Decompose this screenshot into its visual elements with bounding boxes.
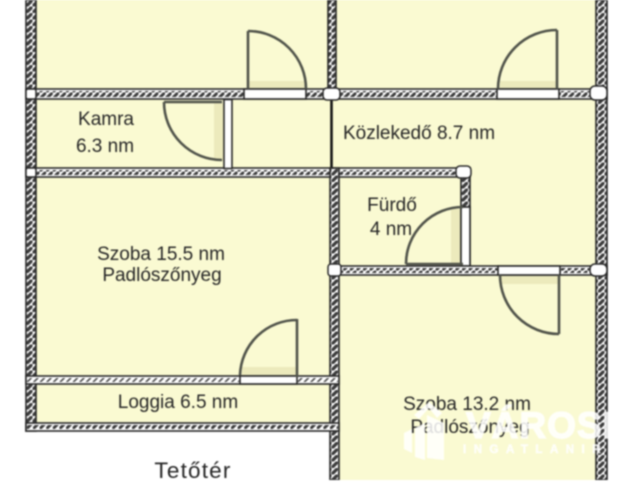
svg-text:Fürdő: Fürdő — [367, 195, 417, 216]
svg-text:Közlekedő 8.7 nm: Közlekedő 8.7 nm — [343, 123, 495, 144]
svg-text:Szoba 15.5 nm: Szoba 15.5 nm — [97, 244, 225, 265]
svg-text:Loggia 6.5 nm: Loggia 6.5 nm — [118, 392, 238, 413]
svg-text:Kamra: Kamra — [78, 109, 134, 130]
svg-text:INGATLANIRODA: INGATLANIRODA — [463, 444, 640, 456]
svg-text:Tetőtér: Tetőtér — [154, 458, 231, 480]
svg-text:6.3 nm: 6.3 nm — [76, 136, 134, 157]
svg-text:4 nm: 4 nm — [370, 219, 412, 240]
svg-text:Padlószőnyeg: Padlószőnyeg — [102, 265, 221, 286]
svg-text:VÁROSI: VÁROSI — [466, 405, 614, 446]
